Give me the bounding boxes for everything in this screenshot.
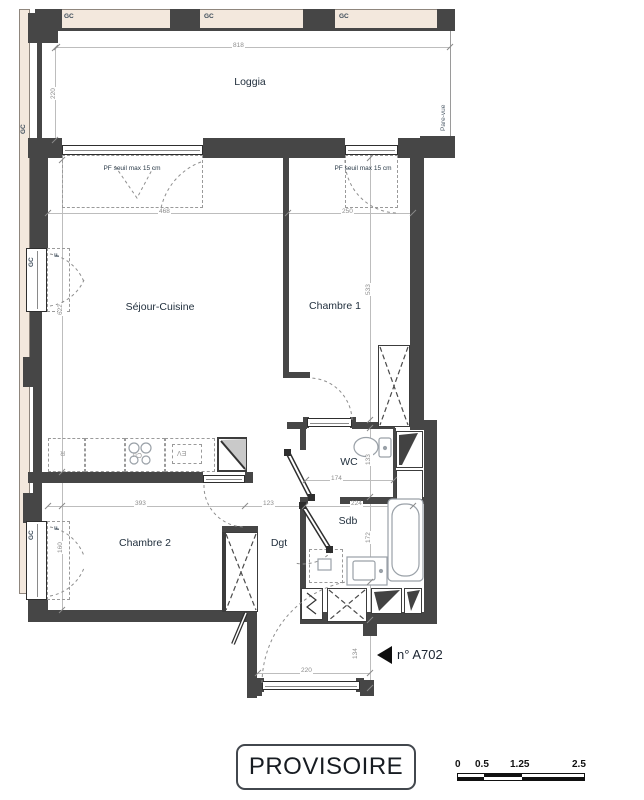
dim-wc-width: 174 <box>330 476 343 483</box>
apartment-number-label: n° A702 <box>397 647 443 662</box>
duct-hatch <box>399 433 418 465</box>
kitchen-sink-label: EV <box>177 449 186 456</box>
sink-bowl <box>353 561 375 580</box>
room-label-chambre1: Chambre 1 <box>300 301 370 313</box>
room-label-chambre2: Chambre 2 <box>110 538 180 550</box>
dim-chambre2-width: 393 <box>134 501 147 508</box>
gc-label-left-band: GC <box>21 124 28 134</box>
scale-label-0: 0 <box>455 760 461 770</box>
entry-arrow-icon <box>377 646 392 664</box>
washing-machine-symbol <box>318 559 331 570</box>
dim-sdb-height: 172 <box>366 531 373 544</box>
pare-vue-label: Pare-vue <box>441 105 448 131</box>
provisoire-stamp-text: PROVISOIRE <box>249 753 403 781</box>
scale-label-05: 0.5 <box>475 760 489 770</box>
window-f-label: F <box>55 526 62 530</box>
window-f-label: F <box>55 253 62 257</box>
dim-wc-height: 133 <box>366 453 373 466</box>
dgt-closet-door-leaf-core <box>233 613 246 644</box>
dim-sdb-width: 224 <box>350 501 363 508</box>
duct-hatch <box>407 590 420 611</box>
gc-label-top-2: GC <box>204 14 214 21</box>
room-label-wc: WC <box>337 457 361 469</box>
pf-threshold-note: PF seuil max 15 cm <box>76 166 188 173</box>
sanitary-fixtures <box>129 438 423 586</box>
closet-x-dgt <box>226 534 256 610</box>
chambre2-door-arc <box>204 485 245 527</box>
water-heater-symbol <box>307 593 316 614</box>
wc-door-leaf-core <box>288 453 311 498</box>
door-hinge <box>326 546 333 553</box>
duct-hatch <box>374 590 400 611</box>
chambre2-window-arc <box>50 568 84 596</box>
chambre2-window-arc <box>50 527 84 556</box>
room-label-sdb: Sdb <box>333 516 363 528</box>
chambre1-door-arc <box>310 378 352 420</box>
room-label-dgt: Dgt <box>264 538 294 550</box>
closet-x-entry <box>329 590 365 620</box>
room-label-sejour: Séjour-Cuisine <box>105 302 215 314</box>
sejour-window-arc <box>50 280 84 306</box>
room-label-loggia: Loggia <box>210 77 290 89</box>
dim-dgt-width: 123 <box>262 501 275 508</box>
scale-label-125: 1.25 <box>510 760 529 770</box>
pf-threshold-note: PF seuil max 15 cm <box>324 166 402 173</box>
dim-chambre2-window: 160 <box>58 541 65 554</box>
toilet-flush-dot <box>384 447 387 450</box>
scale-bar <box>457 773 585 781</box>
scale-label-25: 2.5 <box>572 760 586 770</box>
bathtub-inner <box>392 504 419 576</box>
provisoire-stamp: PROVISOIRE <box>236 744 416 790</box>
scale-segment <box>522 777 584 780</box>
kitchen-fridge-label: R <box>60 449 65 456</box>
gc-label-top-1: GC <box>64 14 74 21</box>
sdb-door-leaf-core <box>303 506 330 550</box>
scale-segment <box>458 777 484 780</box>
hob-burner <box>141 443 151 453</box>
dim-loggia-width: 818 <box>232 43 245 50</box>
dim-entry-depth: 134 <box>353 647 360 660</box>
dim-sejour-width: 468 <box>158 209 171 216</box>
kitchen-hob-label: Cu <box>133 451 142 458</box>
entry-door-arc <box>262 580 366 683</box>
sejour-window-arc <box>50 254 84 282</box>
gc-label-window-chambre2: GC <box>29 530 36 540</box>
dim-chambre1-width: 250 <box>341 209 354 216</box>
dim-loggia-depth: 220 <box>51 87 58 100</box>
dim-entry-width: 220 <box>300 668 313 675</box>
sink-drain-dot <box>380 570 383 573</box>
dim-sejour-height: 622 <box>58 303 65 316</box>
door-hinge <box>308 494 315 501</box>
closet-x-chambre1 <box>380 347 408 425</box>
door-swing-arcs <box>50 160 398 683</box>
hob-burner <box>142 456 150 464</box>
scale-segment <box>484 777 522 780</box>
floor-plan: GC GC GC GC GC GC F F Pare-vue PF seuil … <box>0 0 644 800</box>
plan-symbol-overlay <box>0 0 644 800</box>
dim-chambre1-height: 533 <box>366 283 373 296</box>
gc-label-top-3: GC <box>339 14 349 21</box>
door-hinge <box>284 449 291 456</box>
gc-label-window-sejour: GC <box>29 257 36 267</box>
